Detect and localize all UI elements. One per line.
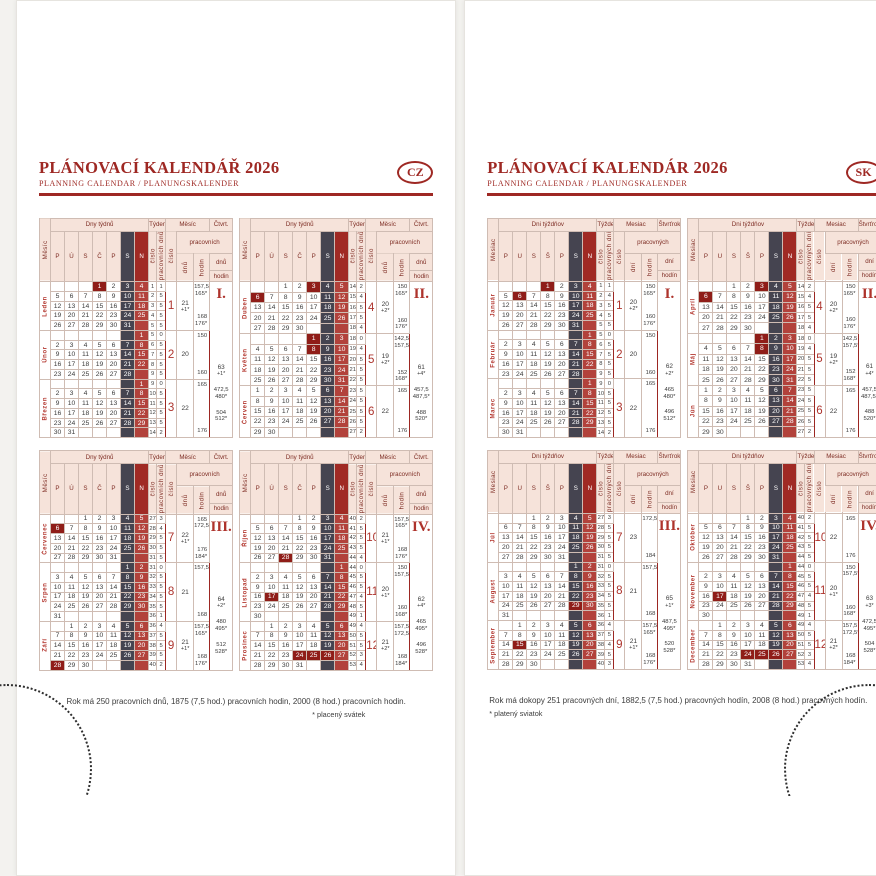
week-number: 13 [149,418,157,428]
day-cell [727,427,741,438]
day-cell: 8 [265,631,279,641]
quarter-days-label: dnů [210,486,233,503]
day-cell: 18 [121,534,135,544]
month-workhours: 150160 [194,330,210,379]
day-cell: 13 [335,631,349,641]
days-of-week-header: Dni týždňov [699,450,797,463]
week-number: 41 [797,523,805,533]
day-cell: 19 [93,360,107,370]
week-workdays: 5 [805,375,814,385]
week-number: 35 [597,601,605,611]
week-number: 23 [349,386,357,396]
day-cell: 3 [93,621,107,631]
day-cell: 1 [121,563,135,573]
day-cell: 11 [583,291,597,301]
day-cell: 10 [121,291,135,301]
day-cell: 22 [727,313,741,323]
day-cell [527,428,541,438]
day-cell: 14 [279,534,293,544]
week-number: 25 [797,406,805,416]
day-cell: 4 [755,621,769,631]
day-cell: 8 [121,573,135,583]
month-days-label: dní [825,485,842,513]
day-cell: 11 [279,582,293,592]
week-number: 29 [149,534,157,544]
day-cell: 14 [79,301,93,311]
day-cell: 27 [279,375,293,385]
quarter-column-header: Čtvrt. [210,218,233,231]
month-workhours: 165176 [194,379,210,438]
week-number: 12 [597,408,605,418]
day-cell: 23 [107,311,121,321]
day-cell: 19 [713,365,727,375]
day-letter: N [783,231,797,281]
day-cell: 21 [293,365,307,375]
month-number: 12 [814,621,825,670]
day-cell: 6 [307,573,321,583]
week-workdays: 4 [157,524,166,534]
week-column-header: Týždeň [597,450,614,463]
week-workdays: 5 [605,552,614,562]
day-cell: 27 [307,602,321,612]
week-workdays: 4 [157,621,166,631]
month-days-label: dnů [177,253,194,281]
day-letter: Ú [265,231,279,281]
day-cell: 3 [555,513,569,523]
month-number: 8 [166,563,177,622]
day-cell: 10 [107,524,121,534]
week-column-header: Týden [149,451,166,464]
day-cell: 21 [107,592,121,602]
month-workhours: 157,5165*168176* [394,514,410,563]
day-cell: 13 [307,582,321,592]
week-number: 31 [149,563,157,573]
week-workdays: 5 [805,385,814,395]
week-workdays: 0 [605,562,614,572]
month-summary-header: Mesiac [614,218,658,231]
day-cell: 17 [335,354,349,364]
day-cell: 28 [741,375,755,385]
day-cell [121,612,135,622]
month-number-label: číslo [614,463,625,513]
week-workdays: 5 [605,533,614,543]
week-number: 2 [597,291,605,301]
day-cell: 9 [93,524,107,534]
day-cell: 13 [755,582,769,592]
day-cell: 1 [727,281,741,291]
day-cell [583,369,597,379]
day-cell: 12 [79,582,93,592]
week-number: 48 [797,601,805,611]
week-workdays: 5 [805,552,814,562]
day-cell: 17 [93,641,107,651]
month-workdays: 19+2* [825,333,842,385]
week-workdays: 5 [605,398,614,408]
day-cell: 1 [527,513,541,523]
week-number: 15 [797,292,805,302]
day-cell: 18 [321,303,335,313]
day-cell: 29 [121,602,135,612]
day-cell [121,428,135,438]
day-cell [769,562,783,572]
month-number: 10 [366,514,377,563]
week-number: 47 [797,591,805,601]
day-cell [135,428,149,438]
day-cell: 9 [51,399,65,409]
day-cell: 29 [265,660,279,670]
day-letter: N [583,463,597,513]
page-footer: Rok má dokopy 251 pracovných dní, 1882,5… [487,696,876,718]
day-cell: 11 [755,630,769,640]
day-letter: P [755,231,769,281]
day-cell [265,514,279,524]
day-cell: 9 [699,582,713,592]
day-cell: 14 [335,396,349,406]
day-cell: 4 [555,621,569,631]
week-workdays: 5 [157,553,166,563]
day-cell: 30 [265,427,279,438]
day-cell: 4 [107,621,121,631]
day-cell: 17 [321,534,335,544]
day-cell: 14 [499,640,513,650]
month-name: Leden [40,282,51,331]
day-cell: 24 [335,365,349,375]
quarter-column-header: Štvrťrok [858,218,876,231]
week-workdays: 4 [805,292,814,302]
month-name: Duben [240,282,251,334]
day-cell: 1 [307,334,321,344]
week-number-label: číslo [149,464,157,514]
week-workdays: 5 [157,291,166,301]
day-cell: 31 [293,660,307,670]
week-workdays: 5 [157,408,166,418]
week-number: 48 [349,602,357,612]
day-cell: 2 [699,572,713,582]
day-cell: 18 [741,406,755,416]
day-cell: 11 [527,398,541,408]
day-cell [79,330,93,340]
day-cell: 12 [93,350,107,360]
week-workdays: 5 [357,375,366,385]
day-cell: 5 [135,514,149,524]
day-cell: 25 [583,311,597,321]
day-cell [93,428,107,438]
day-cell: 24 [755,313,769,323]
day-cell: 7 [65,524,79,534]
day-cell: 16 [135,582,149,592]
day-cell [755,660,769,670]
day-cell: 26 [769,650,783,660]
week-workdays: 5 [605,601,614,611]
week-workdays: 5 [357,396,366,406]
day-cell: 13 [541,582,555,592]
month-workhours: 157,5172,5*168184* [842,621,858,670]
week-number: 27 [797,427,805,438]
day-cell: 31 [121,321,135,331]
week-number: 23 [797,385,805,395]
month-column-header: Měsíc [40,451,51,514]
day-cell: 28 [321,602,335,612]
quarter-hours-label: hodin [410,503,433,514]
day-letter: P [251,464,265,514]
day-cell: 25 [293,417,307,427]
day-cell: 19 [541,359,555,369]
day-cell: 23 [51,369,65,379]
day-cell: 1 [783,562,797,572]
week-column-header: Týždeň [597,218,614,231]
month-number: 6 [814,385,825,437]
month-workdays: 20+1* [825,562,842,621]
week-number: 11 [597,398,605,408]
day-cell: 1 [583,379,597,389]
page-header: PLÁNOVACÍ KALENDÁŘ 2026 PLANNING CALENDA… [39,159,433,188]
day-cell: 5 [321,621,335,631]
week-column-header: Týždeň [797,450,814,463]
day-cell: 26 [79,602,93,612]
month-name: Listopad [240,563,251,622]
week-workdays: 5 [157,418,166,428]
day-cell: 21 [699,650,713,660]
week-workdays: 5 [805,640,814,650]
day-cell [755,562,769,572]
day-cell: 16 [499,408,513,418]
day-cell: 13 [513,301,527,311]
day-cell: 15 [93,301,107,311]
week-workdays: 2 [805,281,814,291]
day-cell: 2 [499,389,513,399]
day-cell: 26 [93,369,107,379]
month-summary-header: Měsíc [166,218,210,231]
day-cell: 30 [321,375,335,385]
day-cell: 20 [321,406,335,416]
day-cell: 29 [527,552,541,562]
day-cell: 6 [699,292,713,302]
day-cell: 2 [499,340,513,350]
day-cell: 4 [769,281,783,291]
day-cell: 11 [727,582,741,592]
day-cell: 22 [135,360,149,370]
day-cell: 27 [321,417,335,427]
week-workdays: 5 [357,313,366,323]
day-cell: 29 [251,427,265,438]
day-cell [513,281,527,291]
month-workdays: 20+2* [625,281,642,330]
day-letter: P [555,463,569,513]
week-number: 22 [797,375,805,385]
day-cell: 15 [251,406,265,416]
day-cell: 2 [51,389,65,399]
week-number: 16 [797,302,805,312]
day-cell: 22 [93,311,107,321]
month-workdays: 21 [177,563,194,622]
week-number: 7 [597,350,605,360]
day-cell: 22 [527,543,541,553]
day-cell: 12 [135,524,149,534]
day-cell: 20 [107,360,121,370]
day-cell: 25 [307,651,321,661]
day-cell [79,282,93,292]
day-cell [65,379,79,389]
day-cell: 27 [499,552,513,562]
day-letter: N [135,231,149,281]
month-days-label: dní [825,253,842,281]
month-hours-label: hodín [842,485,858,513]
week-workdays: 4 [357,621,366,631]
day-cell: 17 [541,640,555,650]
working-label: pracovních [177,464,233,486]
day-cell: 30 [583,601,597,611]
day-cell [699,621,713,631]
day-cell: 13 [279,354,293,364]
day-cell: 27 [51,553,65,563]
day-letter: S [79,231,93,281]
day-cell [699,513,713,523]
day-cell: 20 [583,640,597,650]
day-cell: 13 [727,354,741,364]
day-cell: 8 [783,572,797,582]
week-workdays: 4 [805,344,814,354]
month-column-header: Mesiac [688,218,699,281]
day-cell [79,428,93,438]
day-cell: 28 [265,323,279,333]
week-number: 4 [149,311,157,321]
day-cell: 29 [307,375,321,385]
day-cell [569,330,583,340]
day-letter: S [121,231,135,281]
week-workdays: 5 [805,416,814,426]
day-cell: 31 [321,553,335,563]
day-cell: 23 [541,543,555,553]
footer-summary: Rok má 250 pracovních dnů, 1875 (7,5 hod… [39,697,433,706]
day-cell: 14 [713,302,727,312]
month-workhours: 150165*160176* [642,281,658,330]
quarter-table-I: MěsícDny týdnůTýdenMěsícČtvrt.PÚSČPSNčís… [39,218,233,438]
day-cell: 5 [527,572,541,582]
week-workdays: 5 [605,582,614,592]
calendar-sheet: PLÁNOVACÍ KALENDÁŘ 2026 PLANNING CALENDA… [0,0,876,876]
day-cell: 26 [335,313,349,323]
week-number: 47 [349,592,357,602]
week-workdays: 0 [605,330,614,340]
day-cell: 10 [293,631,307,641]
day-cell: 16 [699,591,713,601]
day-cell [541,562,555,572]
day-cell: 7 [741,344,755,354]
month-workdays: 21+2* [377,621,394,670]
week-workdays: 1 [605,611,614,621]
day-cell: 26 [251,553,265,563]
day-cell: 17 [107,534,121,544]
day-cell: 11 [699,354,713,364]
day-cell: 5 [79,573,93,583]
day-letter: Š [741,231,755,281]
week-workdays: 5 [605,350,614,360]
day-cell: 20 [541,591,555,601]
month-column-header: Mesiac [488,450,499,513]
day-cell: 4 [335,514,349,524]
day-cell: 24 [93,651,107,661]
day-cell: 29 [279,323,293,333]
day-cell: 7 [727,523,741,533]
day-cell: 13 [51,534,65,544]
day-cell: 31 [783,375,797,385]
day-cell: 13 [555,350,569,360]
day-cell: 21 [555,591,569,601]
day-cell: 8 [293,524,307,534]
day-cell: 30 [107,321,121,331]
day-cell [713,333,727,343]
day-cell: 18 [335,534,349,544]
day-cell: 5 [307,386,321,396]
day-cell: 10 [93,631,107,641]
quarter-summary: III.65+1*487,5495*520528* [658,513,681,669]
week-number: 5 [149,321,157,331]
day-cell [307,563,321,573]
day-cell: 21 [527,311,541,321]
day-cell: 23 [251,602,265,612]
month-days-label: dnů [377,253,394,281]
day-cell: 15 [513,640,527,650]
day-cell [555,562,569,572]
day-cell [499,562,513,572]
week-workdays: 5 [605,320,614,330]
day-cell: 19 [265,365,279,375]
week-number-label: číslo [797,231,805,281]
day-cell: 9 [107,291,121,301]
day-cell: 26 [783,313,797,323]
week-workdays: 0 [805,333,814,343]
day-cell: 22 [713,650,727,660]
page-subtitle: PLANNING CALENDAR / PLANUNGSKALENDER [39,179,279,188]
quarter-numeral: I. [665,287,675,302]
day-cell [499,281,513,291]
day-cell: 18 [569,533,583,543]
quarter-days-label: dnů [410,253,433,270]
day-cell: 8 [279,292,293,302]
day-cell: 11 [555,630,569,640]
week-workdays: 5 [605,572,614,582]
day-cell: 19 [93,408,107,418]
week-number: 30 [597,543,605,553]
week-number: 21 [797,365,805,375]
day-cell: 17 [513,359,527,369]
day-cell [499,513,513,523]
week-workdays: 5 [157,301,166,311]
day-cell: 9 [251,582,265,592]
month-number: 5 [366,334,377,386]
day-letter: Č [93,464,107,514]
day-cell: 29 [755,375,769,385]
day-cell: 8 [513,630,527,640]
week-number: 18 [797,323,805,333]
month-number: 1 [614,281,625,330]
week-number: 34 [597,591,605,601]
week-number: 49 [797,621,805,631]
day-cell: 4 [135,282,149,292]
day-cell: 14 [741,354,755,364]
day-cell: 9 [769,344,783,354]
day-letter: N [335,231,349,281]
day-cell: 15 [755,354,769,364]
week-workdays-label: pracovných dní [805,463,814,513]
week-number: 50 [349,631,357,641]
day-cell [741,562,755,572]
day-cell: 29 [335,602,349,612]
month-summary-header: Mesiac [814,218,858,231]
week-workdays: 5 [605,408,614,418]
day-letter: Č [293,231,307,281]
day-cell: 18 [783,533,797,543]
